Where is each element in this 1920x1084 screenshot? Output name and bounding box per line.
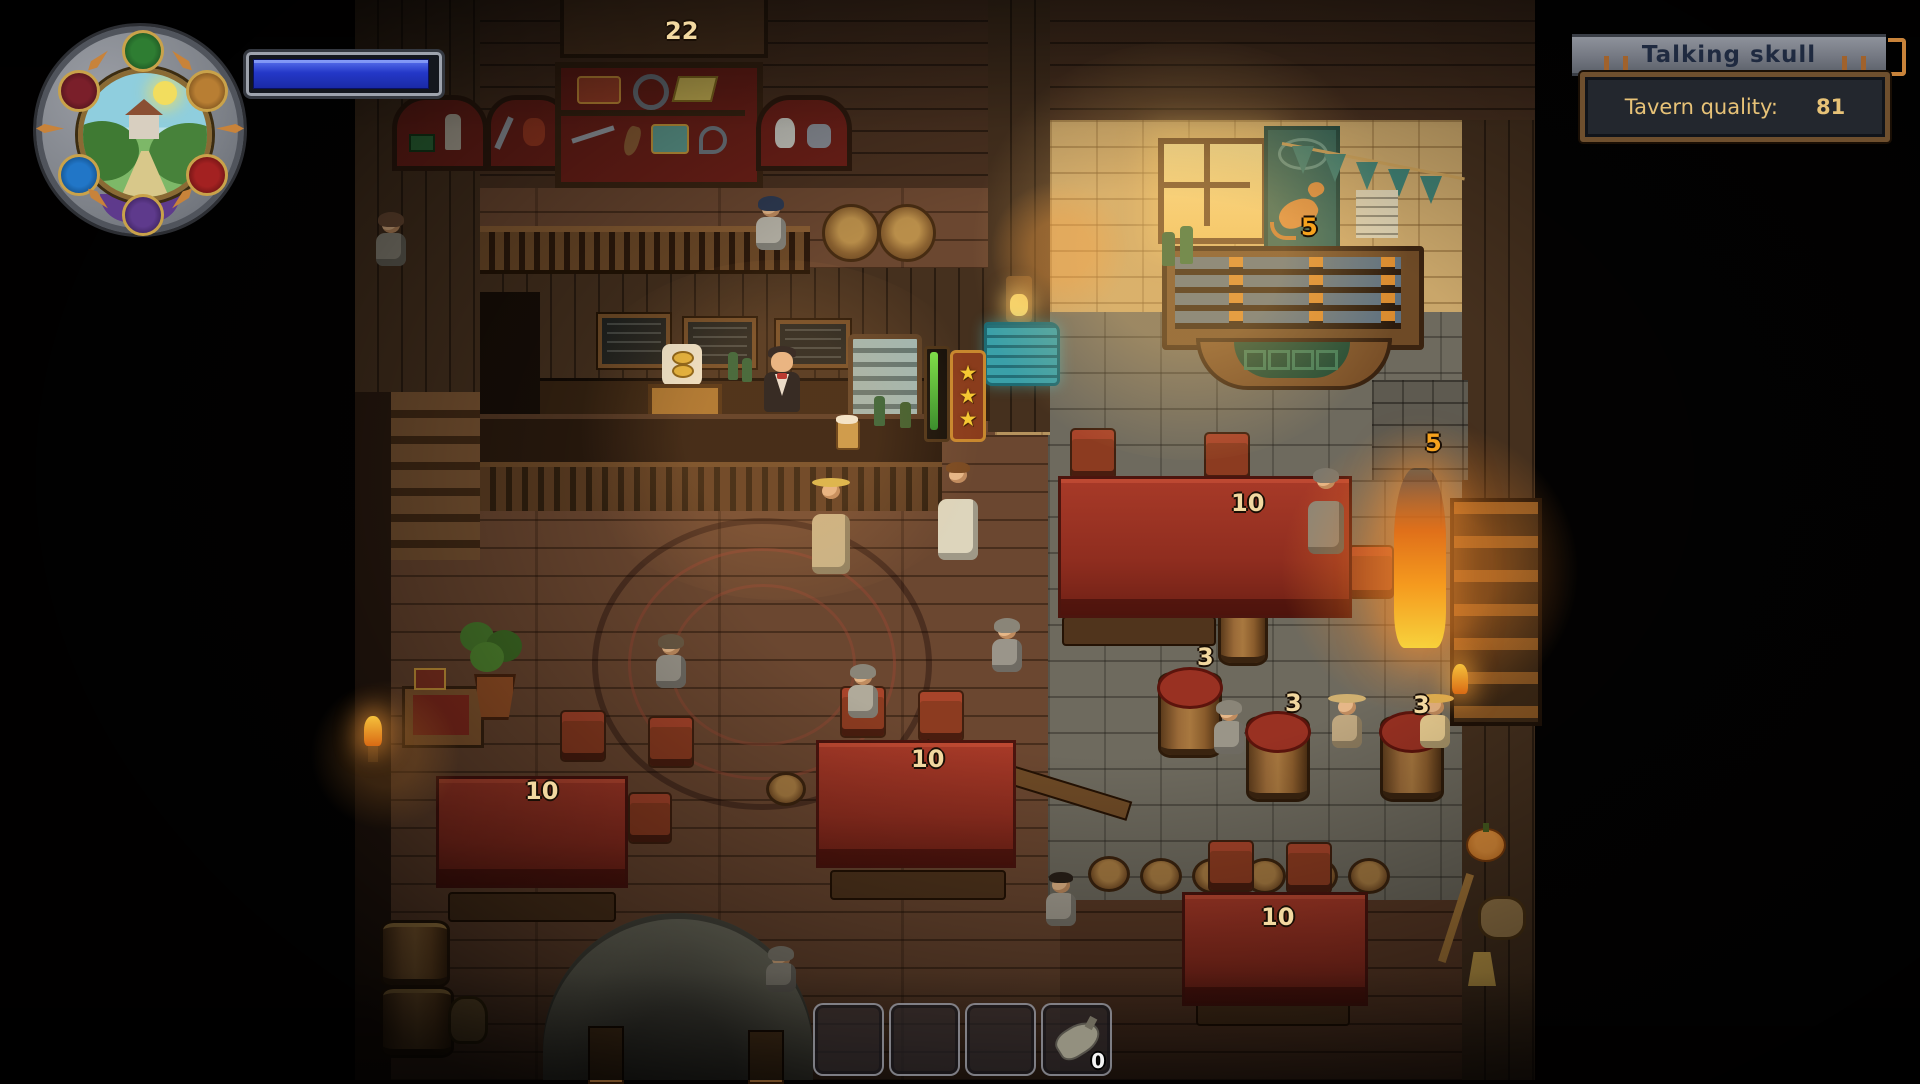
skull-shield-icon [494, 776, 521, 806]
bottle-icon [1180, 226, 1193, 264]
torch-right [1452, 664, 1468, 694]
wall-lamp [1006, 276, 1032, 322]
skull-shield-icon [1785, 94, 1809, 121]
bench[interactable] [448, 892, 616, 922]
plant-foliage [470, 642, 504, 672]
felt-slot [1268, 350, 1290, 370]
bottle-icon [874, 396, 885, 426]
tavern-scene: ★★★ [0, 0, 1920, 1080]
green-box-item [409, 134, 435, 152]
hook-item [699, 126, 727, 154]
stool[interactable] [766, 772, 806, 806]
rack-peg-column [1229, 257, 1243, 329]
coin-speech-bubble [662, 344, 702, 386]
bottle-icon [1162, 232, 1175, 266]
skull-shield-icon [1270, 212, 1297, 242]
beer-mug[interactable] [836, 420, 860, 450]
barrel[interactable] [822, 204, 880, 262]
arch-shelf-left[interactable] [392, 95, 488, 171]
dial-icon-bottom [122, 194, 164, 236]
coin-icon [672, 364, 694, 378]
white-jug-item [775, 118, 795, 148]
horn-item [621, 125, 643, 158]
quality-value: 5 [1425, 429, 1442, 457]
quality-value: 3 [1197, 643, 1214, 671]
time-progress-bar [246, 52, 442, 96]
tavern-quality-panel: Tavern quality: 81 [1580, 72, 1890, 142]
quality-value: 10 [1261, 903, 1294, 931]
hotbar-slot-1[interactable] [813, 1003, 884, 1076]
quality-badge-barrel-middle: 3 [1254, 688, 1302, 718]
alcove [480, 292, 540, 422]
tavern-quality-value: 81 [1816, 95, 1845, 119]
basket[interactable] [1478, 896, 1526, 940]
shelf-divider [561, 110, 745, 116]
hotbar-slot-2[interactable] [889, 1003, 960, 1076]
rack-peg-column [1309, 257, 1323, 329]
menu-blackboard-1[interactable] [598, 314, 670, 368]
red-mask-item [523, 118, 545, 146]
rack-peg-column [1381, 257, 1395, 329]
dial-icon-lower-right [186, 154, 228, 196]
pumpkin-stem [1483, 823, 1489, 832]
chair[interactable] [648, 716, 694, 768]
chair[interactable] [918, 690, 964, 742]
quality-badge-right-wall: 5 [1394, 428, 1442, 458]
window [1158, 138, 1268, 244]
chair[interactable] [1070, 428, 1116, 480]
blue-scroll-poster[interactable] [984, 322, 1060, 386]
skull-shield-icon [880, 744, 907, 774]
skull-shield-icon [1200, 488, 1227, 518]
hotbar-slot-4[interactable]: 0 [1041, 1003, 1112, 1076]
top-right-wall [1050, 0, 1535, 122]
statue-item [445, 114, 461, 150]
skull-shield-icon [1254, 688, 1281, 718]
quality-badge-barrel-right: 3 [1382, 690, 1430, 720]
npc-monk[interactable] [992, 618, 1022, 672]
bottle-rack[interactable] [1162, 246, 1424, 350]
skull-shield-icon [1382, 690, 1409, 720]
quality-badge-center-table: 10 [880, 744, 944, 774]
bartender-bowtie [777, 373, 787, 379]
npc-woman-gray[interactable] [656, 634, 686, 688]
wooden-post [748, 1030, 784, 1084]
quality-value: 3 [1285, 689, 1302, 717]
quality-value: 10 [525, 777, 558, 805]
wooden-post [588, 1026, 624, 1084]
gold-emblem-item [577, 76, 621, 104]
quality-badge-entrance: 22 [634, 16, 698, 46]
lamp-light [1010, 294, 1028, 316]
bar-counter-top[interactable] [480, 414, 942, 469]
carpet-ring [670, 584, 856, 746]
star-icons: ★★★ [956, 362, 980, 431]
barrel[interactable] [380, 986, 454, 1058]
npc-monk[interactable] [1214, 700, 1244, 754]
stool[interactable] [1088, 856, 1130, 892]
sun-icon [153, 81, 177, 105]
sack[interactable] [448, 996, 488, 1044]
time-progress-fill [253, 59, 429, 89]
item-count: 0 [1091, 1049, 1105, 1073]
quality-gauge [924, 346, 950, 442]
chair[interactable] [1348, 545, 1394, 599]
quality-badge-rat-banner: 5 [1270, 212, 1318, 242]
dial-icon-upper-left [58, 70, 100, 112]
bottle-icon [900, 402, 911, 428]
npc-hooded-figure[interactable] [1308, 468, 1344, 554]
rat-head [1306, 179, 1327, 199]
stool[interactable] [1348, 858, 1390, 894]
day-time-dial[interactable] [36, 26, 244, 234]
torch-left-flame [364, 716, 382, 746]
quality-badge-left-table: 10 [494, 776, 558, 806]
display-cabinet[interactable] [555, 62, 763, 188]
beer-foam [836, 415, 858, 424]
npc-waitress[interactable] [756, 196, 786, 250]
felt-slot [1292, 350, 1314, 370]
rack-rows [1175, 257, 1401, 329]
chair[interactable] [628, 792, 672, 844]
quality-gauge-fill [930, 352, 938, 430]
gold-bar-item [672, 76, 718, 102]
felt-slot [1316, 350, 1338, 370]
bench[interactable] [830, 870, 1006, 900]
wall-note[interactable] [1356, 190, 1398, 238]
bottle-icon [742, 358, 752, 382]
hotbar-slot-3[interactable] [965, 1003, 1036, 1076]
bartender-head [771, 352, 793, 372]
chair[interactable] [560, 710, 606, 762]
tavern-name-title: Talking skull [1642, 42, 1816, 68]
tavern-quality-label: Tavern quality: [1625, 95, 1778, 119]
quality-value: 3 [1413, 691, 1430, 719]
quality-badge-barrel-left: 3 [1166, 642, 1214, 672]
arch-shelf-right[interactable] [756, 95, 852, 171]
npc-lady-tan-hat[interactable] [1332, 694, 1362, 748]
quality-badge-large-table: 10 [1200, 488, 1264, 518]
quality-badge-bottom-right-table: 10 [1230, 902, 1294, 932]
dial-icon-lower-left [58, 154, 100, 196]
gray-pot-item [807, 124, 831, 148]
quality-value: 10 [1231, 489, 1264, 517]
barrel[interactable] [380, 920, 450, 988]
barrel[interactable] [878, 204, 936, 262]
rack-apron [1196, 338, 1392, 390]
teal-relic-item [651, 124, 689, 154]
stool[interactable] [1140, 858, 1182, 894]
plant-pot [474, 674, 516, 720]
skull-shield-icon [1230, 902, 1257, 932]
skull-shield-icon [1166, 642, 1193, 672]
npc-monk[interactable] [376, 212, 406, 266]
tool-item [494, 116, 513, 150]
quality-value: 22 [665, 17, 698, 45]
church [129, 113, 159, 139]
bar-counter-front [480, 462, 942, 511]
npc-kneeling-monk[interactable] [766, 946, 796, 992]
quality-value: 10 [911, 745, 944, 773]
skull-shield-icon [1394, 428, 1421, 458]
window-crossbar [1164, 182, 1250, 188]
quality-value: 5 [1301, 213, 1318, 241]
npc-bartender[interactable] [762, 346, 802, 418]
dial-icon-upper-right [186, 70, 228, 112]
npc-seated-lady[interactable] [848, 664, 878, 718]
star-rating-sign: ★★★ [950, 350, 986, 442]
potted-plant[interactable] [456, 622, 526, 722]
book-on-table[interactable] [414, 668, 446, 690]
chair[interactable] [1208, 840, 1254, 892]
dagger-item [571, 125, 614, 143]
fire-flames [1394, 468, 1446, 648]
npc-straw-hat-lady[interactable] [812, 478, 850, 574]
npc-man-white-shirt[interactable] [938, 462, 978, 560]
bottle-icon [728, 352, 738, 380]
skull-shield-icon [634, 16, 661, 46]
barrel-table[interactable] [1158, 672, 1222, 758]
pumpkin[interactable] [1466, 828, 1506, 862]
chair[interactable] [1286, 842, 1332, 894]
coin-icon [672, 351, 694, 365]
npc-seated-woman[interactable] [1046, 872, 1076, 926]
banner-bracket-icon [1888, 38, 1906, 76]
dial-icon-top [122, 30, 164, 72]
rope-item [633, 74, 669, 110]
barrel-table[interactable] [1246, 716, 1310, 802]
felt-slot [1244, 350, 1266, 370]
